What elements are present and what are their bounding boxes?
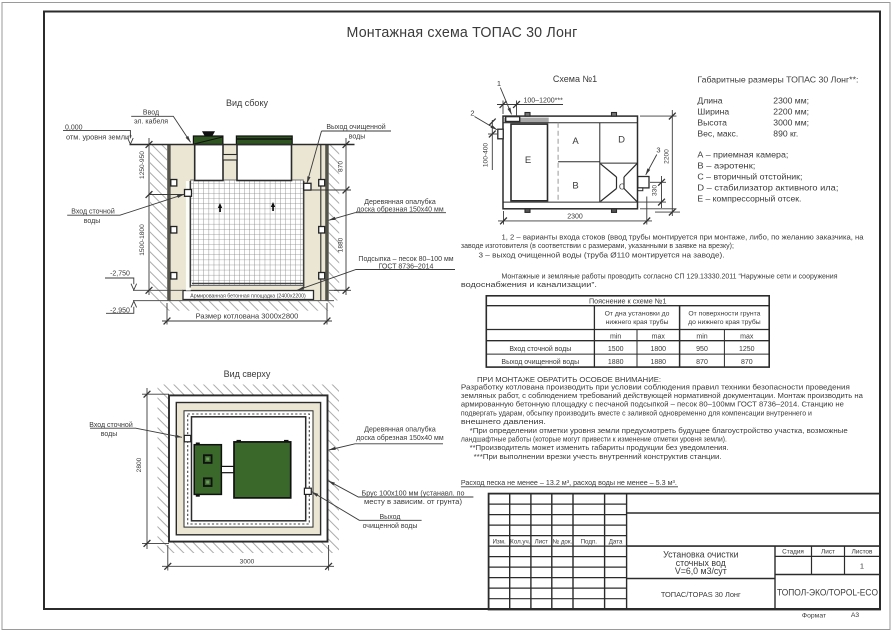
svg-text:доска обрезная 150х40 мм: доска обрезная 150х40 мм bbox=[356, 434, 443, 442]
svg-text:доска обрезная 150х40 мм: доска обрезная 150х40 мм bbox=[356, 206, 443, 214]
svg-text:1: 1 bbox=[860, 562, 864, 571]
svg-text:Выход очищенной: Выход очищенной bbox=[326, 123, 385, 131]
svg-text:Монтажные и земляные работы пр: Монтажные и земляные работы проводить со… bbox=[502, 273, 838, 281]
svg-text:Ввод: Ввод bbox=[143, 110, 159, 117]
svg-text:100-400: 100-400 bbox=[482, 143, 489, 168]
svg-text:Пояснение к схеме №1: Пояснение к схеме №1 bbox=[589, 296, 666, 305]
svg-text:заводе изготовителя (в соответ: заводе изготовителя (в соответствии с ра… bbox=[461, 243, 734, 250]
svg-text:очищенной воды: очищенной воды bbox=[363, 522, 418, 530]
svg-text:Разработку котлована производи: Разработку котлована производить при усл… bbox=[461, 383, 850, 391]
svg-text:до нижнего края трубы: до нижнего края трубы bbox=[688, 318, 761, 326]
svg-text:Вид сбоку: Вид сбоку bbox=[226, 98, 268, 108]
svg-text:***При выполнении врезки учест: ***При выполнении врезки учесть внутренн… bbox=[474, 453, 722, 461]
svg-text:1500: 1500 bbox=[608, 346, 624, 353]
svg-text:А3: А3 bbox=[851, 612, 860, 619]
svg-text:Деревянная опалубка: Деревянная опалубка bbox=[364, 198, 436, 206]
svg-text:1880: 1880 bbox=[338, 237, 345, 252]
svg-text:Дата: Дата bbox=[609, 539, 623, 546]
svg-text:Ширина: Ширина bbox=[697, 107, 729, 117]
svg-text:воды: воды bbox=[84, 218, 101, 225]
svg-text:Высота: Высота bbox=[697, 118, 727, 128]
svg-text:Изм.: Изм. bbox=[492, 539, 506, 546]
svg-text:Лист: Лист bbox=[821, 549, 835, 556]
svg-text:*При определении отметки уровн: *При определении отметки уровня земли пр… bbox=[470, 427, 848, 435]
svg-text:Брус 100х100 мм (устанавл. по: Брус 100х100 мм (устанавл. по bbox=[362, 490, 465, 497]
svg-text:2800: 2800 bbox=[136, 457, 143, 472]
svg-text:Выход очищенной воды: Выход очищенной воды bbox=[501, 358, 579, 366]
svg-text:Вид сверху: Вид сверху bbox=[224, 369, 271, 379]
svg-text:1: 1 bbox=[497, 79, 501, 88]
svg-text:ТОПАС/TOPAS 30 Лонг: ТОПАС/TOPAS 30 Лонг bbox=[661, 590, 741, 599]
svg-text:Выход: Выход bbox=[380, 514, 401, 521]
svg-text:2300 мм;: 2300 мм; bbox=[773, 96, 809, 106]
svg-text:C: C bbox=[619, 182, 625, 192]
svg-text:D – стабилизатор активного ила: D – стабилизатор активного ила; bbox=[697, 183, 838, 193]
svg-text:Габаритные размеры ТОПАС 30 Ло: Габаритные размеры ТОПАС 30 Лонг**: bbox=[697, 75, 858, 85]
svg-text:-2,950: -2,950 bbox=[110, 308, 130, 315]
svg-text:От поверхности грунта: От поверхности грунта bbox=[688, 311, 760, 318]
svg-text:3000: 3000 bbox=[240, 559, 255, 566]
svg-text:Стадия: Стадия bbox=[782, 549, 804, 556]
svg-text:1500-1800: 1500-1800 bbox=[139, 224, 146, 256]
svg-text:Длина: Длина bbox=[697, 96, 722, 106]
svg-text:В – аэротенк;: В – аэротенк; bbox=[697, 161, 755, 171]
svg-text:ПРИ МОНТАЖЕ ОБРАТИТЬ ОСОБОЕ ВН: ПРИ МОНТАЖЕ ОБРАТИТЬ ОСОБОЕ ВНИМАНИЕ: bbox=[477, 377, 661, 384]
svg-text:А – приемная камера;: А – приемная камера; bbox=[697, 150, 788, 160]
svg-text:месту в зависим. от грунта): месту в зависим. от грунта) bbox=[364, 499, 462, 506]
svg-text:От дна установки до: От дна установки до bbox=[605, 311, 670, 318]
svg-text:1, 2 – варианты входа стоков: 1, 2 – варианты входа стоков (ввод трубы… bbox=[502, 233, 864, 241]
svg-text:Размер котлована 3000х2800: Размер котлована 3000х2800 bbox=[196, 311, 299, 320]
svg-text:армированную бетонную площадку: армированную бетонную площадку с песчано… bbox=[461, 401, 844, 409]
svg-text:подвергать ударам, обсыпку про: подвергать ударам, обсыпку производить в… bbox=[461, 409, 812, 417]
svg-text:1880: 1880 bbox=[651, 359, 667, 366]
svg-text:Листов: Листов bbox=[852, 549, 873, 556]
svg-text:870: 870 bbox=[741, 359, 753, 366]
svg-text:ТОПОЛ-ЭКО/TOPOL-ECO: ТОПОЛ-ЭКО/TOPOL-ECO bbox=[777, 588, 878, 599]
svg-text:Вход сточной: Вход сточной bbox=[89, 421, 133, 429]
svg-text:1800: 1800 bbox=[651, 346, 667, 353]
svg-text:земляных работ, с соблюдением: земляных работ, с соблюдением требований… bbox=[461, 392, 863, 400]
svg-text:Кол.уч.: Кол.уч. bbox=[510, 539, 531, 546]
svg-text:2200 мм;: 2200 мм; bbox=[773, 107, 809, 117]
svg-text:Е – компрессорный отсек.: Е – компрессорный отсек. bbox=[697, 194, 801, 204]
svg-text:воды: воды bbox=[349, 134, 366, 141]
svg-text:ландшафтные работы (которые мо: ландшафтные работы (которые могут привес… bbox=[461, 436, 727, 444]
svg-text:-2,750: -2,750 bbox=[110, 271, 130, 278]
svg-text:0,000: 0,000 bbox=[65, 124, 83, 131]
svg-text:Расход песка не менее – 13.2 м: Расход песка не менее – 13.2 м³, расход … bbox=[461, 480, 677, 487]
svg-text:950: 950 bbox=[696, 346, 708, 353]
svg-text:max: max bbox=[740, 333, 754, 340]
svg-text:D: D bbox=[618, 135, 625, 146]
svg-text:2300: 2300 bbox=[567, 214, 583, 221]
svg-text:воды: воды bbox=[101, 431, 118, 438]
svg-text:2200: 2200 bbox=[663, 149, 670, 164]
svg-text:max: max bbox=[652, 333, 666, 340]
svg-text:Схема №1: Схема №1 bbox=[553, 74, 597, 84]
svg-text:870: 870 bbox=[696, 359, 708, 366]
svg-text:нижнего края трубы: нижнего края трубы bbox=[606, 318, 669, 326]
svg-text:№ док.: № док. bbox=[552, 539, 572, 546]
svg-text:Вход сточной: Вход сточной bbox=[71, 207, 115, 215]
svg-text:Подп.: Подп. bbox=[581, 539, 598, 546]
svg-text:B: B bbox=[572, 181, 578, 192]
svg-text:1880: 1880 bbox=[608, 359, 624, 366]
svg-text:870: 870 bbox=[338, 161, 345, 172]
svg-text:3000 мм;: 3000 мм; bbox=[773, 118, 809, 128]
svg-text:Подсыпка – песок 80–100 мм: Подсыпка – песок 80–100 мм bbox=[358, 256, 453, 263]
svg-text:Монтажная схема ТОПАС 30 Лонг: Монтажная схема ТОПАС 30 Лонг bbox=[347, 24, 578, 41]
svg-text:эл. кабеля: эл. кабеля bbox=[134, 118, 168, 126]
svg-text:отм. уровня земли*: отм. уровня земли* bbox=[66, 135, 132, 142]
svg-text:3: 3 bbox=[656, 146, 660, 155]
svg-text:водоснабжения и канализации”.: водоснабжения и канализации”. bbox=[461, 281, 597, 289]
svg-text:1250-950: 1250-950 bbox=[139, 151, 146, 179]
svg-text:Армированная бетонная площадка: Армированная бетонная площадка (2400х220… bbox=[190, 293, 306, 299]
svg-text:ГОСТ 8736–2014: ГОСТ 8736–2014 bbox=[379, 264, 434, 271]
svg-text:Формат: Формат bbox=[802, 612, 826, 619]
svg-text:внешнего давления.: внешнего давления. bbox=[461, 419, 546, 426]
svg-text:min: min bbox=[696, 333, 707, 340]
svg-text:3 – выход очищенной воды (труб: 3 – выход очищенной воды (труба Ø110 мон… bbox=[479, 251, 725, 259]
svg-text:Деревянная опалубка: Деревянная опалубка bbox=[364, 425, 436, 433]
svg-text:Лист: Лист bbox=[535, 539, 549, 546]
svg-text:Вход сточной воды: Вход сточной воды bbox=[509, 345, 571, 353]
svg-text:Вес, макс.: Вес, макс. bbox=[697, 129, 738, 139]
svg-text:min: min bbox=[610, 333, 621, 340]
svg-text:330: 330 bbox=[651, 185, 658, 196]
svg-text:**Производитель может изменить: **Производитель может изменить габариты … bbox=[470, 444, 729, 452]
svg-text:100–1200***: 100–1200*** bbox=[524, 97, 564, 104]
svg-text:890 кг.: 890 кг. bbox=[773, 129, 798, 139]
svg-text:С – вторичный отстойник;: С – вторичный отстойник; bbox=[697, 172, 802, 182]
svg-text:E: E bbox=[525, 155, 531, 166]
svg-text:1250: 1250 bbox=[739, 346, 755, 353]
svg-text:A: A bbox=[572, 136, 579, 147]
svg-text:V=6,0 м3/сут: V=6,0 м3/сут bbox=[675, 566, 727, 576]
svg-text:2: 2 bbox=[470, 109, 474, 118]
